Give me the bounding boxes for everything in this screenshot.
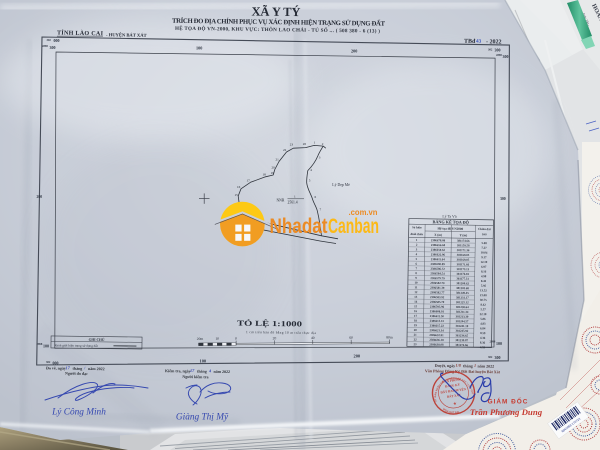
- svg-text:Số hiệu: Số hiệu: [412, 225, 422, 229]
- svg-text:381241.18: 381241.18: [456, 324, 469, 328]
- svg-text:381176.81: 381176.81: [456, 272, 469, 276]
- svg-text:Kiểm tra, ngày: Kiểm tra, ngày: [165, 368, 191, 373]
- svg-text:100: 100: [496, 341, 502, 346]
- svg-text:8.36: 8.36: [480, 341, 486, 345]
- svg-text:200: 200: [351, 48, 357, 53]
- svg-text:8.42: 8.42: [481, 279, 487, 283]
- svg-text:GHI CHÚ: GHI CHÚ: [89, 337, 105, 342]
- svg-text:20: 20: [272, 165, 276, 169]
- svg-text:21.08: 21.08: [480, 293, 487, 297]
- svg-text:20m: 20m: [197, 337, 204, 341]
- svg-text:381234.65: 381234.65: [455, 333, 468, 337]
- svg-text:381274.66: 381274.66: [455, 343, 468, 347]
- svg-text:2386613.31: 2386613.31: [430, 319, 445, 323]
- svg-text:23: 23: [290, 142, 294, 146]
- svg-text:XÃ Y TÝ: XÃ Y TÝ: [251, 4, 300, 19]
- svg-text:2386621.34: 2386621.34: [429, 328, 444, 332]
- svg-text:300: 300: [503, 54, 509, 59]
- svg-text:300: 300: [500, 197, 506, 201]
- svg-text:X (m): X (m): [434, 233, 442, 237]
- svg-text:30.75: 30.75: [480, 298, 487, 302]
- svg-text:Ranh giới hiện trạng sử dụng đ: Ranh giới hiện trạng sử dụng đất: [54, 343, 97, 348]
- svg-text:10: 10: [215, 337, 219, 341]
- svg-text:381159.58: 381159.58: [457, 243, 470, 247]
- svg-text:2386585.70: 2386585.70: [430, 300, 445, 304]
- svg-text:381211.34: 381211.34: [456, 310, 469, 314]
- svg-text:381173.13: 381173.13: [456, 267, 469, 271]
- svg-text:Giàng Thị Mỹ: Giàng Thị Mỹ: [176, 413, 229, 423]
- svg-text:1: 1: [474, 363, 476, 368]
- svg-text:0: 0: [235, 337, 237, 341]
- svg-text:2386582.77: 2386582.77: [430, 290, 445, 294]
- svg-text:4.36: 4.36: [480, 336, 486, 340]
- svg-text:17: 17: [247, 178, 251, 182]
- svg-text:2386622.96: 2386622.96: [431, 252, 446, 256]
- svg-text:Duyệt, ngày: Duyệt, ngày: [435, 363, 456, 368]
- svg-text:381213.30: 381213.30: [456, 314, 469, 318]
- svg-text:20: 20: [273, 336, 277, 340]
- svg-text:NNR: NNR: [277, 199, 285, 203]
- svg-text:1 cm trên bản đồ bằng 10 m trê: 1 cm trên bản đồ bằng 10 m trên thực địa: [246, 329, 317, 335]
- svg-text:20: 20: [303, 142, 307, 146]
- svg-text:300: 300: [50, 45, 56, 50]
- svg-text:4.59: 4.59: [480, 345, 486, 349]
- svg-text:381171.36: 381171.36: [457, 248, 470, 252]
- svg-text:2386583.92: 2386583.92: [430, 295, 445, 299]
- svg-text:5.08: 5.08: [481, 241, 487, 245]
- svg-text:2386581.39: 2386581.39: [430, 286, 445, 290]
- svg-text:381244.57: 381244.57: [456, 319, 469, 323]
- svg-text:100: 100: [43, 344, 49, 349]
- svg-text:năm 2022: năm 2022: [88, 366, 105, 371]
- svg-text:Nhadat: Nhadat: [270, 214, 328, 238]
- svg-text:.com.vn: .com.vn: [349, 208, 378, 217]
- svg-text:100: 100: [200, 359, 207, 364]
- svg-text:43: 43: [476, 39, 482, 45]
- svg-text:21: 21: [276, 158, 280, 162]
- svg-text:10.04: 10.04: [481, 251, 488, 255]
- svg-text:Đo vẽ, ngày: Đo vẽ, ngày: [46, 365, 66, 370]
- svg-text:2898: 2898: [42, 44, 48, 48]
- svg-text:Chiều dài: Chiều dài: [478, 227, 491, 231]
- svg-text:381177.51: 381177.51: [456, 277, 469, 281]
- svg-text:2898: 2898: [37, 342, 43, 346]
- svg-text:40: 40: [311, 336, 315, 340]
- svg-text:000: 000: [54, 38, 60, 43]
- svg-text:Canban: Canban: [328, 214, 379, 238]
- svg-text:300: 300: [495, 48, 501, 53]
- svg-text:2386582.70: 2386582.70: [430, 281, 445, 285]
- svg-text:tháng: tháng: [463, 363, 473, 368]
- svg-text:2386590.89: 2386590.89: [431, 262, 446, 266]
- svg-text:- HUYỆN BÁT XÁT: - HUYỆN BÁT XÁT: [106, 32, 147, 38]
- svg-text:22.18: 22.18: [480, 312, 487, 316]
- svg-text:Y (m): Y (m): [459, 233, 467, 237]
- svg-text:22: 22: [283, 148, 287, 152]
- svg-text:Văn Phòng Đăng Ký Đất Đai huyệ: Văn Phòng Đăng Ký Đất Đai huyện Bát Xát: [425, 368, 501, 374]
- svg-text:302: 302: [46, 360, 51, 364]
- svg-text:7.27: 7.27: [481, 246, 487, 250]
- svg-text:1: 1: [294, 195, 296, 199]
- svg-text:tháng: tháng: [197, 369, 207, 374]
- svg-text:4: 4: [208, 368, 211, 373]
- svg-text:8.42: 8.42: [481, 303, 487, 307]
- svg-text:100: 100: [196, 46, 202, 51]
- svg-text:381231.17: 381231.17: [456, 296, 469, 300]
- svg-text:381169.05: 381169.05: [457, 258, 470, 262]
- svg-text:5.95: 5.95: [481, 284, 487, 288]
- svg-text:200: 200: [354, 354, 361, 359]
- svg-text:381249.45: 381249.45: [456, 291, 469, 295]
- svg-text:Lý Dẹp Mẻ: Lý Dẹp Mẻ: [332, 183, 350, 187]
- svg-text:TỎ LỆ 1:1000: TỎ LỆ 1:1000: [237, 318, 302, 329]
- svg-text:5.86: 5.86: [480, 317, 486, 321]
- svg-text:381238.64: 381238.64: [456, 305, 469, 309]
- svg-text:381174.66: 381174.66: [457, 239, 470, 243]
- svg-text:300: 300: [495, 355, 501, 360]
- svg-text:2386579.79: 2386579.79: [430, 276, 445, 280]
- svg-text:6.97: 6.97: [481, 265, 487, 269]
- svg-text:2386584.54: 2386584.54: [430, 271, 445, 275]
- svg-text:đỉnh thửa: đỉnh thửa: [410, 232, 423, 236]
- svg-text:2386615.22: 2386615.22: [430, 324, 445, 328]
- svg-text:302: 302: [488, 355, 493, 359]
- svg-text:Hệ tọa độ VN2000: Hệ tọa độ VN2000: [437, 226, 463, 230]
- svg-text:Trần Phương Dung: Trần Phương Dung: [470, 407, 543, 417]
- svg-text:200: 200: [37, 195, 43, 199]
- svg-text:năm 2022: năm 2022: [478, 363, 495, 368]
- svg-text:Người đo đạc: Người đo đạc: [65, 371, 88, 376]
- svg-text:2386611.50: 2386611.50: [430, 314, 445, 318]
- svg-text:2386656.68: 2386656.68: [431, 243, 446, 247]
- svg-text:2386608.91: 2386608.91: [430, 309, 445, 313]
- svg-text:15: 15: [235, 193, 239, 197]
- svg-text:2561.4: 2561.4: [288, 200, 298, 204]
- svg-text:2386586.72: 2386586.72: [430, 267, 445, 271]
- svg-text:381169.05: 381169.05: [457, 253, 470, 257]
- svg-text:8.16: 8.16: [481, 269, 487, 273]
- svg-text:381225.12: 381225.12: [456, 300, 469, 304]
- svg-text:5.57: 5.57: [480, 307, 486, 311]
- svg-text:BẢNG KÊ TỌA ĐỘ: BẢNG KÊ TỌA ĐỘ: [433, 219, 470, 225]
- svg-text:381171.66: 381171.66: [457, 262, 470, 266]
- svg-text:Lý Công Minh: Lý Công Minh: [51, 408, 106, 418]
- svg-text:381200.62: 381200.62: [456, 281, 469, 285]
- svg-text:2386650.62: 2386650.62: [431, 248, 446, 252]
- svg-text:(m): (m): [482, 232, 487, 236]
- svg-text:4.83: 4.83: [480, 322, 486, 326]
- svg-text:381245.92: 381245.92: [455, 329, 468, 333]
- svg-text:2386636.18: 2386636.18: [429, 338, 444, 342]
- svg-text:2386632.91: 2386632.91: [429, 333, 444, 337]
- svg-text:6.84: 6.84: [480, 326, 486, 330]
- svg-text:302: 302: [47, 38, 52, 42]
- svg-text:381239.87: 381239.87: [455, 338, 468, 342]
- svg-text:12.19: 12.19: [480, 260, 487, 264]
- svg-text:2386611.64: 2386611.64: [431, 257, 446, 261]
- svg-text:4.98: 4.98: [481, 274, 487, 278]
- svg-text:Lý Ta Vù: Lý Ta Vù: [442, 214, 457, 218]
- svg-text:60: 60: [349, 336, 353, 340]
- svg-text:16: 16: [237, 185, 241, 189]
- svg-text:2386638.08: 2386638.08: [429, 342, 444, 346]
- svg-text:302: 302: [488, 47, 493, 51]
- svg-text:9.17: 9.17: [481, 255, 487, 259]
- svg-text:2386678.08: 2386678.08: [431, 238, 446, 242]
- svg-text:8.59: 8.59: [480, 331, 486, 335]
- svg-text:80m: 80m: [386, 335, 393, 339]
- svg-text:Người kiểm tra: Người kiểm tra: [182, 374, 208, 379]
- svg-text:381202.68: 381202.68: [456, 286, 469, 290]
- svg-text:13.52: 13.52: [480, 288, 487, 292]
- svg-text:2898: 2898: [490, 340, 496, 344]
- svg-text:19: 19: [271, 171, 275, 175]
- svg-text:2386595.96: 2386595.96: [430, 305, 445, 309]
- svg-text:2898: 2898: [496, 53, 502, 57]
- svg-text:năm 2022: năm 2022: [213, 369, 230, 374]
- svg-text:18: 18: [263, 172, 267, 176]
